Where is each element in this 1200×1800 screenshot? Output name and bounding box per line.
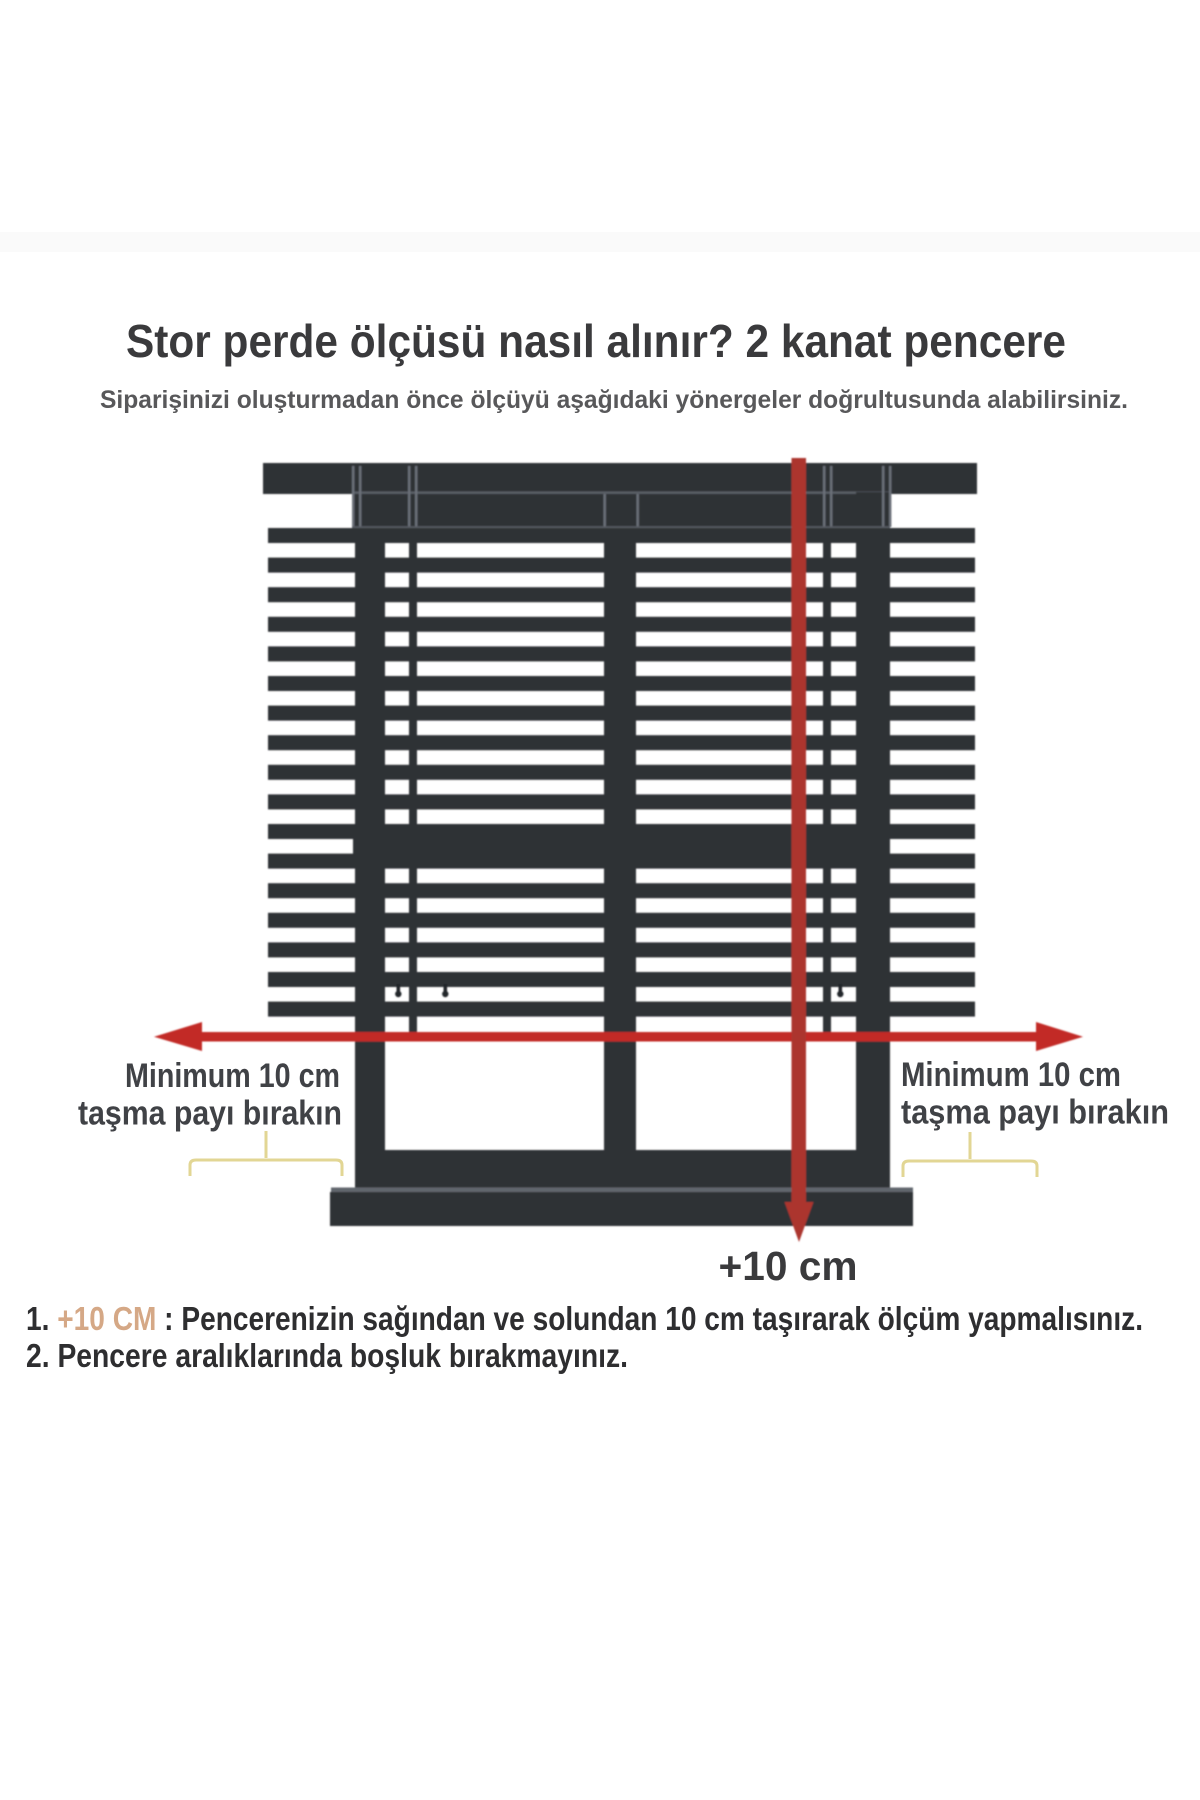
- svg-text:Siparişinizi oluşturmadan önce: Siparişinizi oluşturmadan önce ölçüyü aş…: [100, 386, 1128, 414]
- svg-text:2. Pencere aralıklarında boşlu: 2. Pencere aralıklarında boşluk bırakmay…: [26, 1337, 628, 1374]
- svg-text:1. +10 CM : Pencerenizin sağın: 1. +10 CM : Pencerenizin sağından ve sol…: [26, 1300, 1143, 1337]
- svg-text:Minimum 10 cm: Minimum 10 cm: [901, 1056, 1121, 1094]
- svg-text:Minimum 10 cm: Minimum 10 cm: [125, 1057, 340, 1095]
- svg-text:taşma payı bırakın: taşma payı bırakın: [78, 1095, 342, 1133]
- svg-text:taşma payı bırakın: taşma payı bırakın: [901, 1094, 1169, 1132]
- svg-text:Stor perde ölçüsü nasıl alınır: Stor perde ölçüsü nasıl alınır? 2 kanat …: [126, 315, 1066, 367]
- svg-text:+10 cm: +10 cm: [719, 1243, 858, 1289]
